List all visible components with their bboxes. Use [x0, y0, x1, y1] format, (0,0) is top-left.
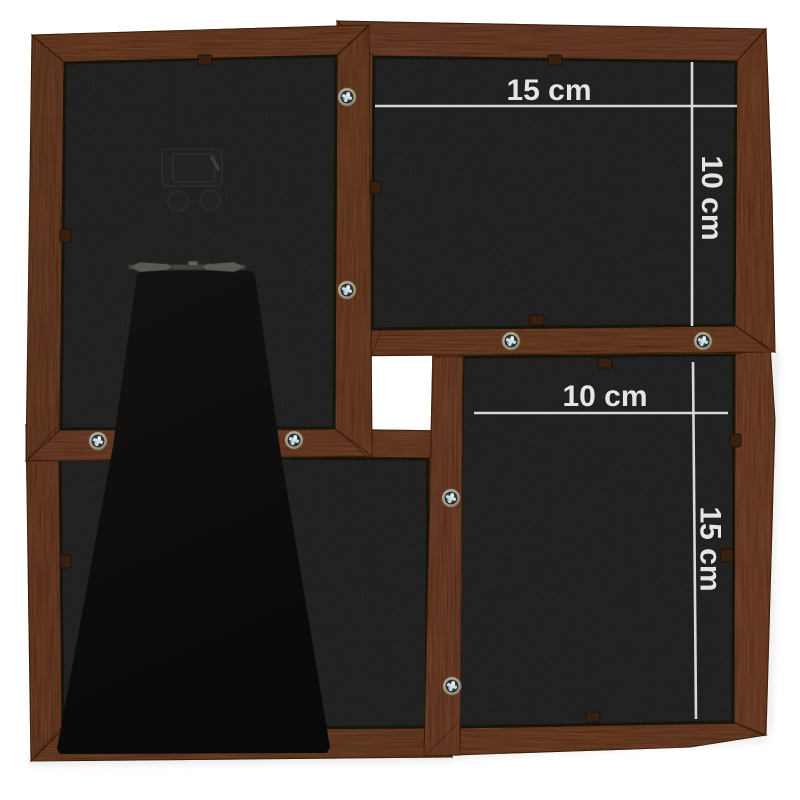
svg-text:15 cm: 15 cm	[506, 74, 591, 107]
svg-text:10 cm: 10 cm	[695, 155, 728, 240]
svg-text:15 cm: 15 cm	[694, 506, 727, 591]
svg-text:10 cm: 10 cm	[562, 380, 647, 413]
